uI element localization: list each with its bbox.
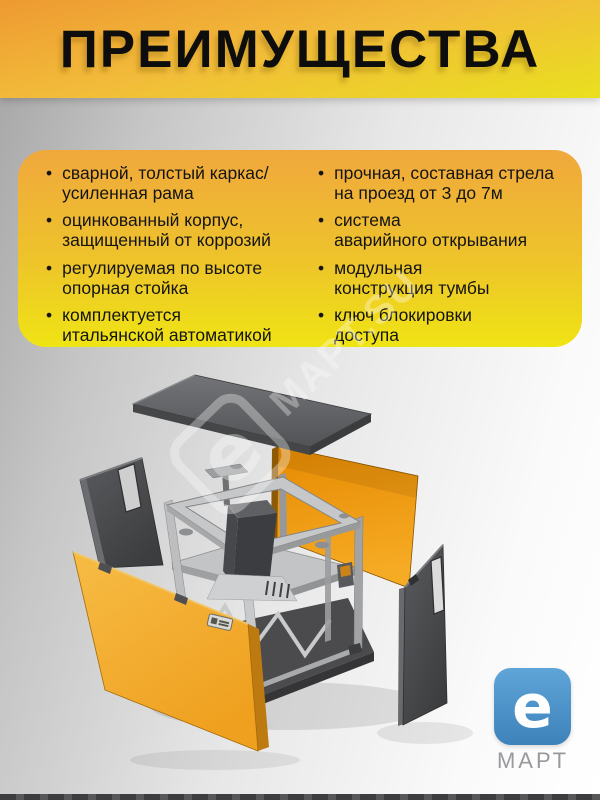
logo-caption: МАРТ [494, 748, 572, 774]
logo-tile: e [494, 668, 571, 745]
advantage-text: оцинкованный корпус, защищенный от корро… [62, 210, 271, 250]
advantage-text: ключ блокировки доступа [334, 305, 472, 345]
bullet-icon: • [46, 210, 52, 250]
company-logo: e МАРТ [494, 668, 572, 774]
advantages-panel: •сварной, толстый каркас/ усиленная рама… [18, 150, 582, 347]
bullet-icon: • [318, 210, 324, 250]
advantage-item: •ключ блокировки доступа [318, 305, 566, 345]
advantages-right-column: •прочная, составная стрела на проезд от … [318, 163, 566, 339]
advantage-item: •оцинкованный корпус, защищенный от корр… [46, 210, 294, 250]
advantage-item: •регулируемая по высоте опорная стойка [46, 258, 294, 298]
back-left-door-panel [80, 458, 163, 568]
page-title: ПРЕИМУЩЕСТВА [60, 19, 541, 80]
top-lid [133, 375, 371, 455]
advantages-left-column: •сварной, толстый каркас/ усиленная рама… [46, 163, 294, 339]
advantage-item: •прочная, составная стрела на проезд от … [318, 163, 566, 203]
advantage-text: сварной, толстый каркас/ усиленная рама [62, 163, 268, 203]
poster: ПРЕИМУЩЕСТВА •сварной, толстый каркас/ у… [0, 0, 600, 800]
bullet-icon: • [318, 258, 324, 298]
side-gearmotor [337, 562, 354, 588]
advantage-item: •модульная конструкция тумбы [318, 258, 566, 298]
bullet-icon: • [318, 163, 324, 203]
advantage-item: •комплектуется итальянской автоматикой [46, 305, 294, 345]
advantage-text: регулируемая по высоте опорная стойка [62, 258, 262, 298]
door-window-cutout [431, 557, 444, 614]
advantage-text: система аварийного открывания [334, 210, 527, 250]
bullet-icon: • [46, 163, 52, 203]
title-band: ПРЕИМУЩЕСТВА [0, 0, 600, 98]
bullet-icon: • [46, 258, 52, 298]
advantage-text: прочная, составная стрела на проезд от 3… [334, 163, 554, 203]
advantage-item: •система аварийного открывания [318, 210, 566, 250]
bullet-icon: • [318, 305, 324, 345]
advantage-text: комплектуется итальянской автоматикой [62, 305, 272, 345]
logo-e-letter: e [512, 680, 553, 734]
advantage-item: •сварной, толстый каркас/ усиленная рама [46, 163, 294, 203]
bottom-edge-strip [0, 794, 600, 800]
advantage-text: модульная конструкция тумбы [334, 258, 489, 298]
bullet-icon: • [46, 305, 52, 345]
